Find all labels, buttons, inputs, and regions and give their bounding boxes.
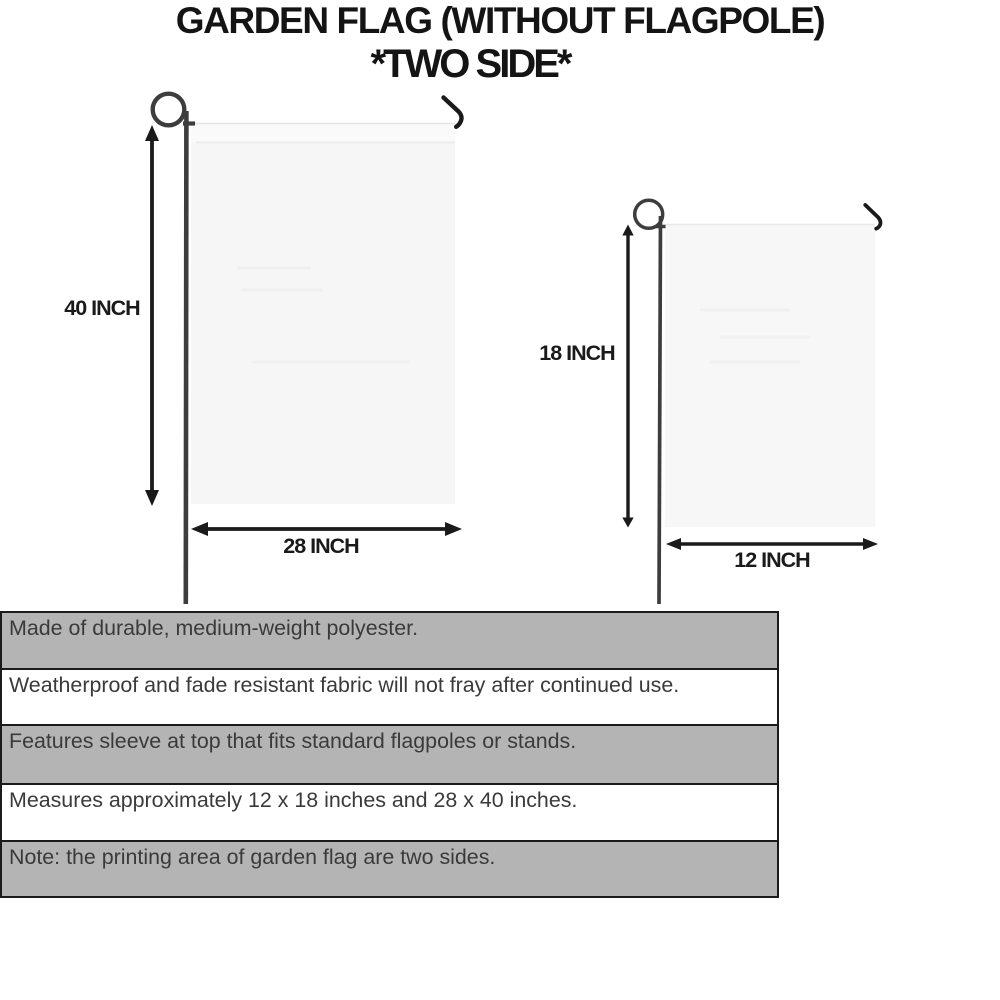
svg-text:12 INCH: 12 INCH (734, 548, 810, 572)
svg-text:40 INCH: 40 INCH (64, 296, 140, 320)
svg-text:18 INCH: 18 INCH (539, 341, 615, 365)
svg-text:28 INCH: 28 INCH (283, 534, 359, 558)
